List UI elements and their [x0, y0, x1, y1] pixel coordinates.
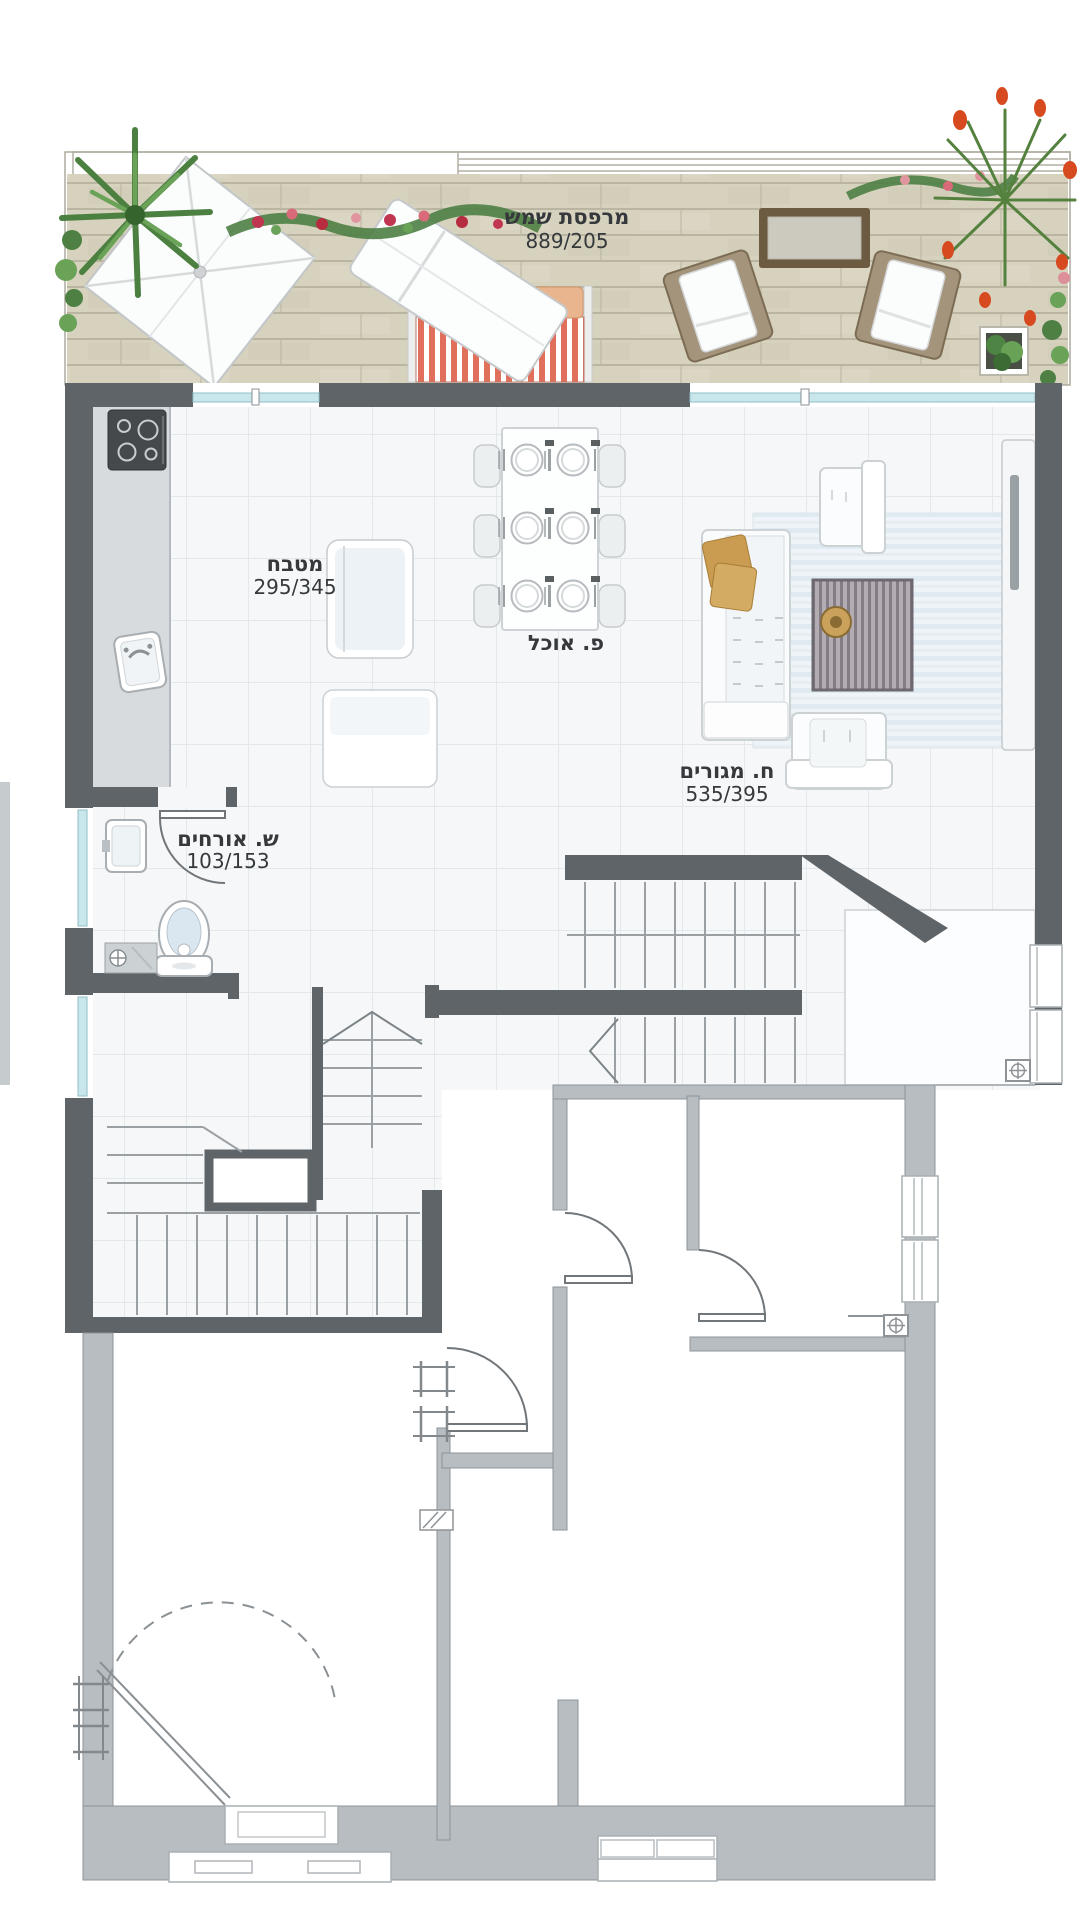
toilet-icon: [156, 901, 212, 976]
side-table-icon: [821, 607, 851, 637]
left-window: [78, 997, 87, 1096]
wall-bath-bottom: [65, 973, 238, 993]
cooktop-icon: [108, 410, 166, 470]
adjacent-structure-marker: [0, 782, 10, 1085]
floor-plan-page: מרפסת שמש 889/205 מטבח 295/345: [0, 0, 1080, 1920]
porch-step: [169, 1852, 391, 1882]
wall-mid-stair: [430, 990, 802, 1015]
wall-jamb: [228, 973, 239, 999]
kitchen-dims: 295/345: [253, 575, 336, 599]
planter-icon: [980, 327, 1028, 375]
dining-area: פ. אוכל: [474, 428, 625, 655]
window-sill: [1030, 945, 1062, 1007]
rear-double-door: [598, 1836, 717, 1881]
guest-bath-name: ש. אורחים: [177, 827, 279, 851]
hatched-box-symbol: [420, 1510, 453, 1530]
tv-icon: [1010, 475, 1019, 590]
sun-terrace-dims: 889/205: [525, 229, 608, 253]
left-window: [78, 810, 87, 926]
washer-icon: [105, 943, 157, 973]
window-mullion: [801, 389, 809, 405]
entry-hall-floor: [93, 1333, 442, 1806]
stairwell-void: [209, 1154, 312, 1207]
dining-name: פ. אוכל: [528, 631, 604, 655]
wall-entry-right: [437, 1428, 450, 1840]
window-mullion: [252, 389, 259, 405]
dining-chair: [599, 445, 625, 487]
living-name: ח. מגורים: [680, 759, 775, 783]
wall-stair-shaft-right: [422, 1190, 442, 1333]
wall-under-living: [565, 855, 802, 880]
wall-stub: [558, 1700, 578, 1806]
guest-bath-label: ש. אורחים 103/153: [177, 827, 279, 873]
wall-lower-top: [553, 1085, 935, 1099]
kitchen-sink-icon: [113, 631, 167, 694]
rear-patio: [845, 910, 1035, 1085]
living-window: [690, 393, 1035, 402]
guest-bath-dims: 103/153: [186, 849, 269, 873]
living-dims: 535/395: [685, 782, 768, 806]
dining-chair: [599, 585, 625, 627]
sun-terrace-name: מרפסת שמש: [505, 205, 630, 229]
armchair: [786, 713, 892, 789]
floor-plan-drawing: מרפסת שמש 889/205 מטבח 295/345: [0, 0, 1080, 1920]
throw-pillow: [709, 562, 757, 611]
dining-chair: [474, 515, 500, 557]
wall-left-lower: [83, 1333, 113, 1880]
bath-door-opening: [158, 787, 226, 807]
wall-room-divider: [553, 1099, 567, 1210]
sofa: [701, 530, 790, 740]
floor-drain-icon: [1006, 1060, 1030, 1081]
tv-console: [1002, 440, 1035, 750]
kitchen-cabinet: [323, 690, 437, 787]
living-label: ח. מגורים 535/395: [680, 759, 775, 806]
wall-room-bottom: [690, 1337, 906, 1351]
armchair: [820, 461, 885, 553]
window-sill: [902, 1176, 938, 1237]
kitchen-name: מטבח: [267, 552, 324, 576]
wall-stair-shaft-bottom: [83, 1317, 442, 1333]
wall-room-divider: [553, 1287, 567, 1530]
kitchen-island: [327, 540, 413, 658]
outdoor-table: [759, 208, 870, 268]
sun-terrace: מרפסת שמש 889/205: [55, 87, 1077, 387]
window-sill: [902, 1240, 938, 1302]
floor-drain-icon: [884, 1315, 908, 1336]
entry-threshold: [225, 1806, 338, 1844]
wall-nook: [442, 1453, 553, 1468]
vanity-sink-icon: [102, 820, 146, 872]
wall-room-divider: [687, 1096, 699, 1250]
dining-chair: [474, 585, 500, 627]
dining-chair: [599, 515, 625, 557]
dining-chair: [474, 445, 500, 487]
lower-floor: [442, 1090, 905, 1806]
window-sill: [1030, 1010, 1062, 1083]
